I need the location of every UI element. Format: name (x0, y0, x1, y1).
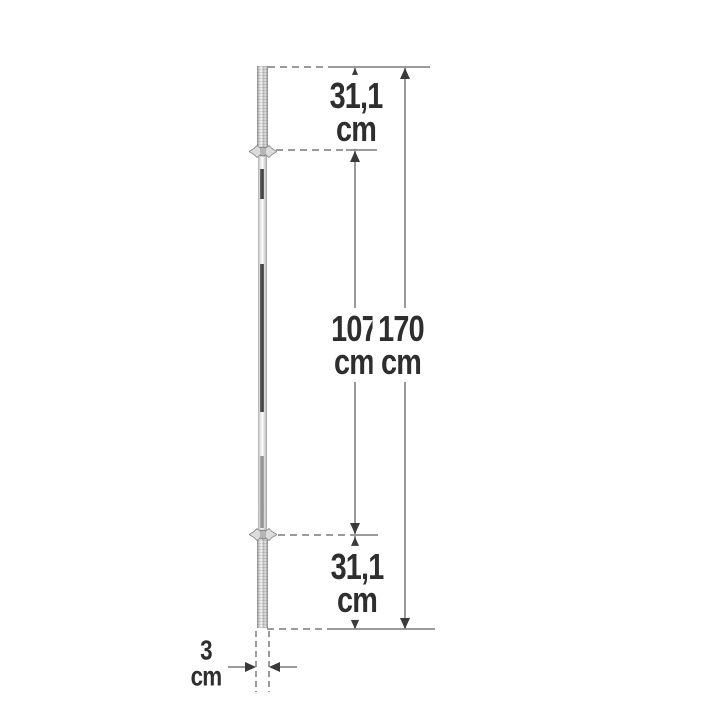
extension-line-collar-top-dashed (276, 149, 346, 151)
arrow-left-icon (269, 662, 280, 672)
dimension-unit: cm (191, 663, 222, 689)
spinlock-collar-bottom-icon (249, 528, 277, 541)
barbell-sleeve-bottom (257, 537, 268, 628)
extension-line-collar-bottom-dashed (278, 534, 355, 536)
arrow-up-icon (350, 151, 360, 162)
arrow-right-icon (245, 662, 256, 672)
arrow-down-icon (400, 618, 410, 629)
dimension-unit: cm (331, 583, 384, 616)
arrow-down-icon (350, 523, 360, 534)
extension-line-bottom-dashed (267, 628, 333, 630)
diameter-leader-right (277, 666, 297, 668)
dimension-unit: cm (330, 112, 383, 145)
knurl-section-lower (260, 456, 264, 528)
extension-line-collar-bottom-solid (355, 534, 378, 536)
spinlock-collar-top-icon (249, 145, 277, 158)
dimension-label-total-length: 170 cm (373, 308, 430, 382)
dimension-unit: cm (331, 345, 377, 378)
extension-line-top-solid (332, 66, 430, 68)
extension-line-bottom-solid (333, 628, 435, 630)
knurl-section-middle (260, 264, 264, 412)
arrow-up-icon (400, 68, 410, 79)
dimension-unit: cm (378, 345, 424, 378)
barbell-sleeve-top (257, 66, 268, 151)
knurl-section-upper (260, 169, 264, 199)
dimension-diagram: 31,1 cm 107 cm 170 cm 31,1 cm 3 cm (0, 0, 725, 725)
dimension-value: 3 (191, 637, 222, 663)
dimension-label-bottom-sleeve: 31,1 cm (325, 546, 389, 620)
dimension-label-top-sleeve: 31,1 cm (324, 75, 388, 149)
dimension-label-bar-diameter: 3 cm (185, 633, 227, 693)
extension-line-top-dashed (268, 66, 332, 68)
